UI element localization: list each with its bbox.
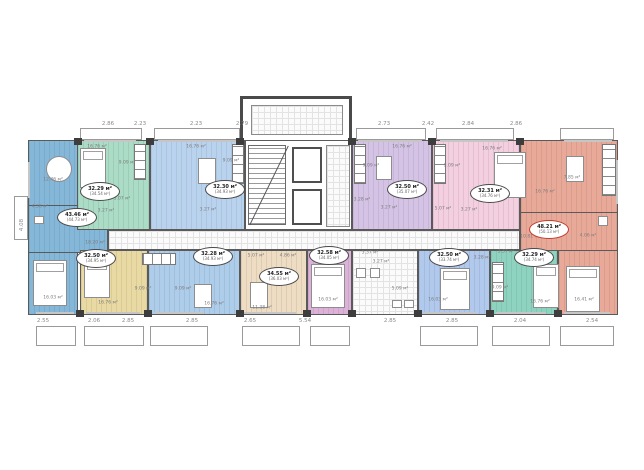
- room-label: 16.76 м²: [186, 145, 206, 150]
- area-badge-corner-right: 48.21 м² (50.13 м²): [529, 220, 569, 239]
- room-label: 9.09 м²: [363, 164, 380, 169]
- room-label: 16.41 м²: [574, 298, 594, 303]
- area-badge-light-blue-2: 32.28 м² (34.93 м²): [193, 247, 233, 266]
- room-label: 9.09 м²: [223, 159, 240, 164]
- dim: 2.23: [134, 121, 146, 127]
- entrance-vestibule: [251, 105, 343, 135]
- dim: 5.54: [299, 318, 311, 324]
- window: [616, 160, 618, 204]
- room-label: 4.36 м²: [32, 205, 49, 210]
- stair-core-protrusion: [240, 96, 352, 143]
- wall-pier: [516, 138, 524, 145]
- elevator-lobby: [326, 145, 350, 227]
- wall-pier: [428, 138, 436, 145]
- dim: 2.73: [378, 121, 390, 127]
- balcony: [84, 326, 144, 346]
- room-label: 16.03 м²: [318, 298, 338, 303]
- wall-pier: [144, 310, 152, 317]
- wall-pier: [486, 310, 494, 317]
- room-label: 16.76 м²: [535, 190, 555, 195]
- window: [28, 162, 30, 198]
- balcony: [560, 128, 614, 140]
- balcony: [310, 326, 350, 346]
- dim: 2.65: [244, 318, 256, 324]
- bath-fixture-icon: [356, 268, 366, 278]
- kitchen-counter: [142, 253, 176, 265]
- room-label: 9.09 м²: [119, 161, 136, 166]
- bed-icon: [566, 266, 600, 312]
- apartment-total-area: (50.13 м²): [539, 230, 559, 234]
- room-label: 3.27 м²: [98, 209, 115, 214]
- apartment-total-area: (33.74 м²): [439, 258, 459, 262]
- room-label: 18.20 м²: [85, 241, 105, 246]
- room-label: 5.09 м²: [392, 287, 409, 292]
- kitchen-counter: [602, 144, 616, 196]
- bath-fixture-icon: [598, 216, 608, 226]
- wall-pier: [76, 310, 84, 317]
- area-badge-periwinkle: 32.50 м² (33.74 м²): [429, 248, 469, 267]
- room-label: 16.76 м²: [530, 300, 550, 305]
- balcony: [36, 326, 76, 346]
- room-label: 3.27 м²: [381, 206, 398, 211]
- area-badge-magenta: 32.58 м² (34.05 м²): [309, 246, 349, 265]
- table-icon: [198, 158, 216, 184]
- apartment-total-area: (35.07 м²): [397, 190, 417, 194]
- stair-elevator-core: [245, 140, 352, 230]
- kitchen-counter: [134, 144, 146, 180]
- elevator-shaft-1: [292, 147, 322, 183]
- dim: 2.85: [384, 318, 396, 324]
- room-label: 9.09 м²: [135, 287, 152, 292]
- dim: 2.06: [88, 318, 100, 324]
- apartment-total-area: (34.95 м²): [86, 259, 106, 263]
- window: [564, 140, 612, 142]
- staircase: [248, 145, 286, 225]
- room-label: 16.03 м²: [43, 296, 63, 301]
- balcony: [80, 128, 142, 140]
- room-label: 3.37 м²: [362, 251, 379, 256]
- elevator-shaft-2: [292, 189, 322, 225]
- room-label: 16.76 м²: [98, 301, 118, 306]
- room-label: 5.07 м²: [248, 254, 265, 259]
- room-label: 3.27 м²: [373, 260, 390, 265]
- bath-fixture-icon: [392, 300, 402, 308]
- dim: 2.86: [102, 121, 114, 127]
- apartment-total-area: (34.93 м²): [215, 190, 235, 194]
- room-label: 3.27 м²: [461, 208, 478, 213]
- room-label: 12.46 м²: [43, 178, 63, 183]
- apartment-total-area: (36.03 м²): [269, 277, 289, 281]
- window: [36, 312, 74, 314]
- dim: 2.85: [446, 318, 458, 324]
- central-corridor: [108, 230, 520, 250]
- wall-pier: [74, 138, 82, 145]
- wall-pier: [303, 310, 311, 317]
- window: [358, 140, 422, 142]
- wall-pier: [348, 138, 356, 145]
- area-badge-corner-left: 43.46 м² (44.73 м²): [57, 208, 97, 227]
- balcony: [242, 326, 300, 346]
- bath-fixture-icon: [370, 268, 380, 278]
- window: [244, 312, 296, 314]
- dim: 2.23: [190, 121, 202, 127]
- window: [158, 140, 236, 142]
- wall-pier: [554, 310, 562, 317]
- balcony: [492, 326, 550, 346]
- window: [440, 140, 508, 142]
- area-badge-mint: 32.29 м² (34.54 м²): [80, 182, 120, 201]
- balcony: [560, 326, 614, 346]
- room-label: 3.27 м²: [200, 208, 217, 213]
- balcony: [420, 326, 478, 346]
- kitchen-counter: [492, 262, 504, 302]
- wall-pier: [236, 310, 244, 317]
- dim: 2.55: [37, 318, 49, 324]
- room-label: 9.09 м²: [175, 287, 192, 292]
- balcony: [356, 128, 426, 140]
- room-label: 3.37 м²: [498, 250, 515, 255]
- wall-pier: [236, 138, 244, 145]
- room-label: 11.38 м²: [252, 306, 272, 311]
- room-label: 9.09 м²: [444, 164, 461, 169]
- room-label: 3.28 м²: [474, 256, 491, 261]
- room-label: 16.76 м²: [392, 145, 412, 150]
- area-badge-purple: 32.50 м² (35.07 м²): [387, 180, 427, 199]
- area-badge-pink: 32.31 м² (34.76 м²): [470, 184, 510, 203]
- window: [86, 312, 140, 314]
- apartment-total-area: (34.93 м²): [203, 257, 223, 261]
- room-label: 16.76 м²: [204, 302, 224, 307]
- dim: 2.42: [422, 121, 434, 127]
- apartment-total-area: (34.74 м²): [524, 258, 544, 262]
- room-label: 4.06 м²: [580, 234, 597, 239]
- table-icon: [250, 282, 268, 308]
- floor-plan: 43.46 м² (44.73 м²) 32.29 м² (34.54 м²) …: [0, 0, 644, 470]
- room-label: 16.76 м²: [87, 145, 107, 150]
- wall-pier: [348, 310, 356, 317]
- window: [496, 312, 546, 314]
- apartment-total-area: (34.54 м²): [90, 192, 110, 196]
- apartment-total-area: (34.76 м²): [480, 194, 500, 198]
- room-label: 9.09 м²: [492, 286, 509, 291]
- room-label: 3.28 м²: [354, 198, 371, 203]
- dim: 2.85: [186, 318, 198, 324]
- bed-icon: [440, 268, 470, 310]
- area-badge-teal: 32.29 м² (34.74 м²): [514, 248, 554, 267]
- room-label: 5.07 м²: [114, 197, 131, 202]
- balcony: [154, 128, 240, 140]
- room-label: 5.07 м²: [435, 207, 452, 212]
- apartment-total-area: (44.73 м²): [67, 218, 87, 222]
- room-label: 7.85 м²: [564, 176, 581, 181]
- apartment-total-area: (34.05 м²): [319, 256, 339, 260]
- window: [424, 312, 476, 314]
- dim: 2.84: [462, 121, 474, 127]
- balcony: [150, 326, 208, 346]
- bath-fixture-icon: [34, 216, 44, 224]
- dim: 2.85: [122, 318, 134, 324]
- window: [564, 312, 610, 314]
- kitchen-counter: [232, 144, 244, 184]
- area-badge-cream: 34.55 м² (36.03 м²): [259, 267, 299, 286]
- wall-pier: [414, 310, 422, 317]
- window: [84, 140, 136, 142]
- dim: 2.86: [510, 121, 522, 127]
- balcony: [436, 128, 514, 140]
- bath-fixture-icon: [404, 300, 414, 308]
- room-label: 4.86 м²: [280, 254, 297, 259]
- dim: 2.79: [236, 121, 248, 127]
- side-dimension-label: 4.08: [19, 219, 25, 231]
- dim: 2.54: [586, 318, 598, 324]
- room-label: 16.76 м²: [482, 147, 502, 152]
- wall-pier: [146, 138, 154, 145]
- area-badge-yellow: 32.50 м² (34.95 м²): [76, 249, 116, 268]
- room-label: 16.03 м²: [428, 298, 448, 303]
- dim: 2.04: [514, 318, 526, 324]
- window: [154, 312, 204, 314]
- area-badge-light-blue: 32.30 м² (34.93 м²): [205, 180, 245, 199]
